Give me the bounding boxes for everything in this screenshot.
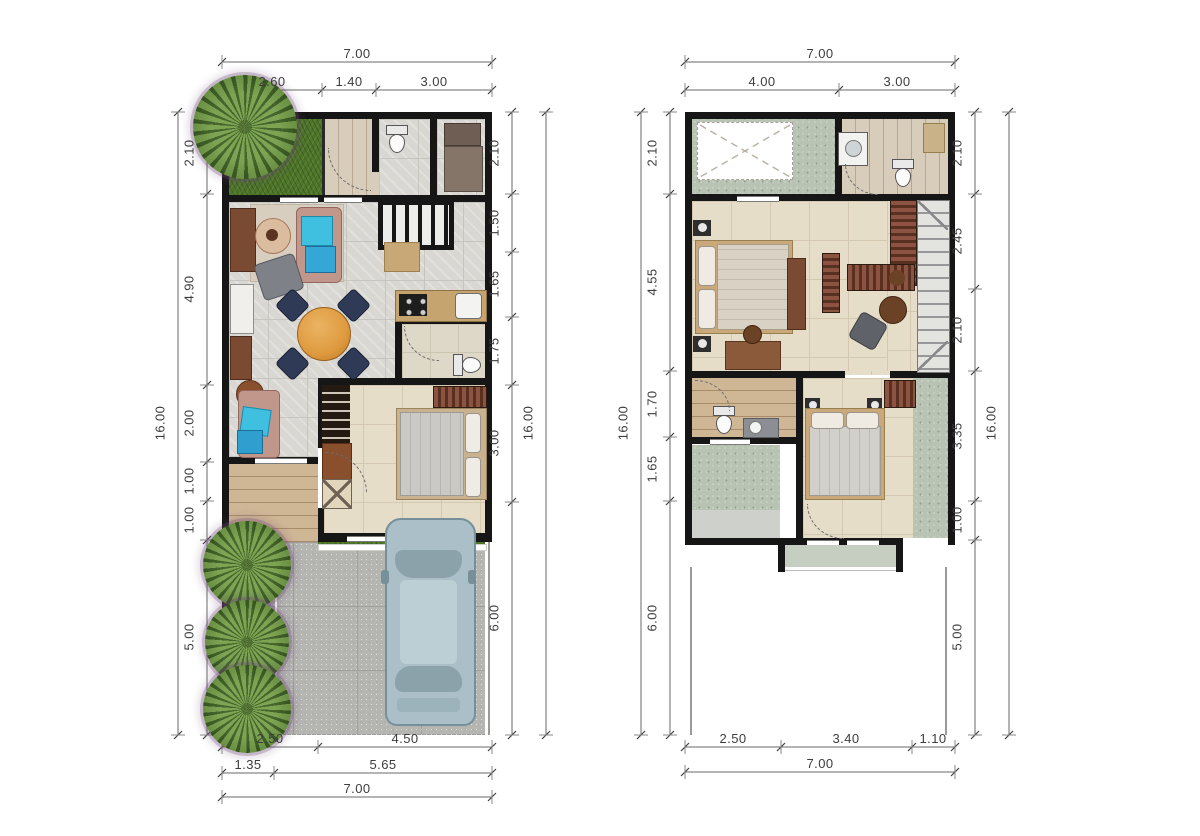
wall	[685, 112, 955, 119]
dim-label: 2.50	[257, 731, 284, 746]
dim-label: 3.40	[833, 731, 860, 746]
wall	[372, 112, 379, 172]
sofa-pillow	[305, 246, 336, 273]
dim-label: 1.35	[235, 757, 262, 772]
dim-label: 7.00	[344, 46, 371, 61]
bed-pillow	[698, 289, 716, 329]
car-roof	[400, 580, 457, 664]
lamp	[698, 223, 707, 232]
bed-pillow	[698, 246, 716, 286]
dim-label: 5.65	[370, 757, 397, 772]
sofa-pillow	[301, 216, 333, 246]
void-cross	[698, 123, 792, 179]
dim-label: 6.00	[645, 605, 660, 632]
dim-label: 2.10	[950, 140, 965, 167]
wall	[318, 378, 485, 385]
dining-table	[297, 307, 351, 361]
garden-border	[322, 119, 325, 195]
car-mirror	[468, 570, 476, 584]
car-windshield	[395, 550, 462, 578]
dim-label: 4.90	[182, 276, 197, 303]
wall	[395, 324, 402, 378]
wardrobe	[884, 380, 916, 408]
bed-mattress	[809, 426, 881, 496]
toilet-icon	[892, 159, 914, 189]
dim-label: 7.00	[807, 756, 834, 771]
balcony-floor	[785, 545, 896, 570]
balcony-wall	[778, 538, 785, 572]
dim-label: 1.00	[182, 507, 197, 534]
dim-label: 2.10	[950, 317, 965, 344]
wall	[685, 112, 692, 545]
dim-label: 1.65	[645, 456, 660, 483]
lower-roof-flat	[692, 510, 780, 538]
dim-label: 2.50	[720, 731, 747, 746]
stairs-break	[917, 200, 948, 230]
bed-pillow	[465, 413, 481, 453]
dim-label: 5.00	[182, 624, 197, 651]
dim-label: 6.00	[487, 605, 502, 632]
car-icon	[385, 518, 476, 726]
dim-label: 7.00	[344, 781, 371, 796]
tree-icon	[203, 521, 291, 609]
armchair-pillow	[237, 430, 263, 454]
dim-label: 2.00	[182, 410, 197, 437]
dim-label: 2.60	[259, 74, 286, 89]
wall	[685, 371, 845, 378]
plot-boundary-line	[488, 542, 490, 735]
window	[280, 197, 318, 203]
dim-label: 1.10	[920, 731, 947, 746]
dim-label: 16.00	[984, 406, 999, 441]
dimension-lines	[0, 0, 1200, 836]
dim-label: 2.10	[182, 140, 197, 167]
stair-landing	[384, 242, 420, 272]
desk	[725, 341, 781, 370]
bed-mattress	[717, 244, 789, 330]
dim-label: 3.00	[487, 430, 502, 457]
bed-mattress	[400, 412, 464, 496]
cabinet	[230, 336, 252, 380]
wall	[430, 112, 437, 195]
coffee-table-decor	[266, 229, 278, 241]
dim-label: 3.35	[950, 423, 965, 450]
floor-plan-canvas: 7.00 2.60 1.40 3.00 16.00 2.10 4.90 2.00…	[0, 0, 1200, 836]
plot-boundary-line	[690, 567, 692, 735]
cabinet	[230, 284, 254, 334]
lower-roof	[692, 445, 780, 510]
dim-label: 1.70	[645, 391, 660, 418]
daybed-pillow	[444, 123, 481, 146]
daybed	[444, 146, 483, 192]
dim-label: 16.00	[521, 406, 536, 441]
decor-pot	[889, 270, 905, 286]
ground-floor-plan	[222, 112, 492, 735]
dim-label: 1.75	[487, 338, 502, 365]
window	[737, 196, 779, 202]
balcony-wall	[896, 538, 903, 572]
void-opening	[697, 122, 793, 180]
dim-label: 4.55	[645, 269, 660, 296]
dim-label: 2.45	[950, 228, 965, 255]
wardrobe	[433, 386, 487, 408]
dim-label: 4.00	[749, 74, 776, 89]
bed-pillow	[811, 412, 844, 429]
dim-label: 1.50	[487, 210, 502, 237]
stool	[743, 325, 762, 344]
wall	[796, 371, 803, 545]
dim-label: 2.10	[645, 140, 660, 167]
bath-shelf	[923, 123, 945, 153]
closet	[322, 385, 350, 443]
dim-label: 1.65	[487, 271, 502, 298]
kitchen-sink-icon	[455, 293, 482, 319]
stove-icon	[399, 294, 427, 316]
toilet-icon	[453, 354, 483, 376]
car-mirror	[381, 570, 389, 584]
bed-pillow	[465, 457, 481, 497]
dim-label: 1.00	[950, 507, 965, 534]
bed-pillow	[846, 412, 879, 429]
dim-label: 4.50	[392, 731, 419, 746]
tree-icon	[193, 75, 297, 179]
sideboard	[230, 208, 256, 272]
window	[347, 536, 387, 542]
car-rear-window	[395, 666, 462, 692]
dim-label: 16.00	[153, 406, 168, 441]
dim-label: 7.00	[807, 46, 834, 61]
dim-label: 1.40	[336, 74, 363, 89]
shelf-unit	[822, 253, 840, 313]
dim-label: 3.00	[884, 74, 911, 89]
lower-roof	[913, 378, 948, 538]
stairs-break	[917, 341, 948, 371]
lamp	[698, 339, 707, 348]
toilet-icon	[386, 125, 408, 155]
upper-floor-plan	[685, 112, 955, 735]
window	[255, 458, 307, 464]
study-table	[879, 296, 907, 324]
car-trunk	[397, 698, 460, 712]
window	[710, 439, 750, 445]
washer-door	[845, 140, 862, 157]
dim-label: 16.00	[616, 406, 631, 441]
bedroom-rug	[787, 258, 806, 330]
dim-label: 1.00	[182, 468, 197, 495]
window	[324, 197, 362, 203]
sink-icon	[749, 421, 762, 434]
dim-label: 2.10	[487, 140, 502, 167]
dim-label: 3.00	[421, 74, 448, 89]
plot-boundary-line	[945, 567, 947, 735]
dim-label: 5.00	[950, 624, 965, 651]
